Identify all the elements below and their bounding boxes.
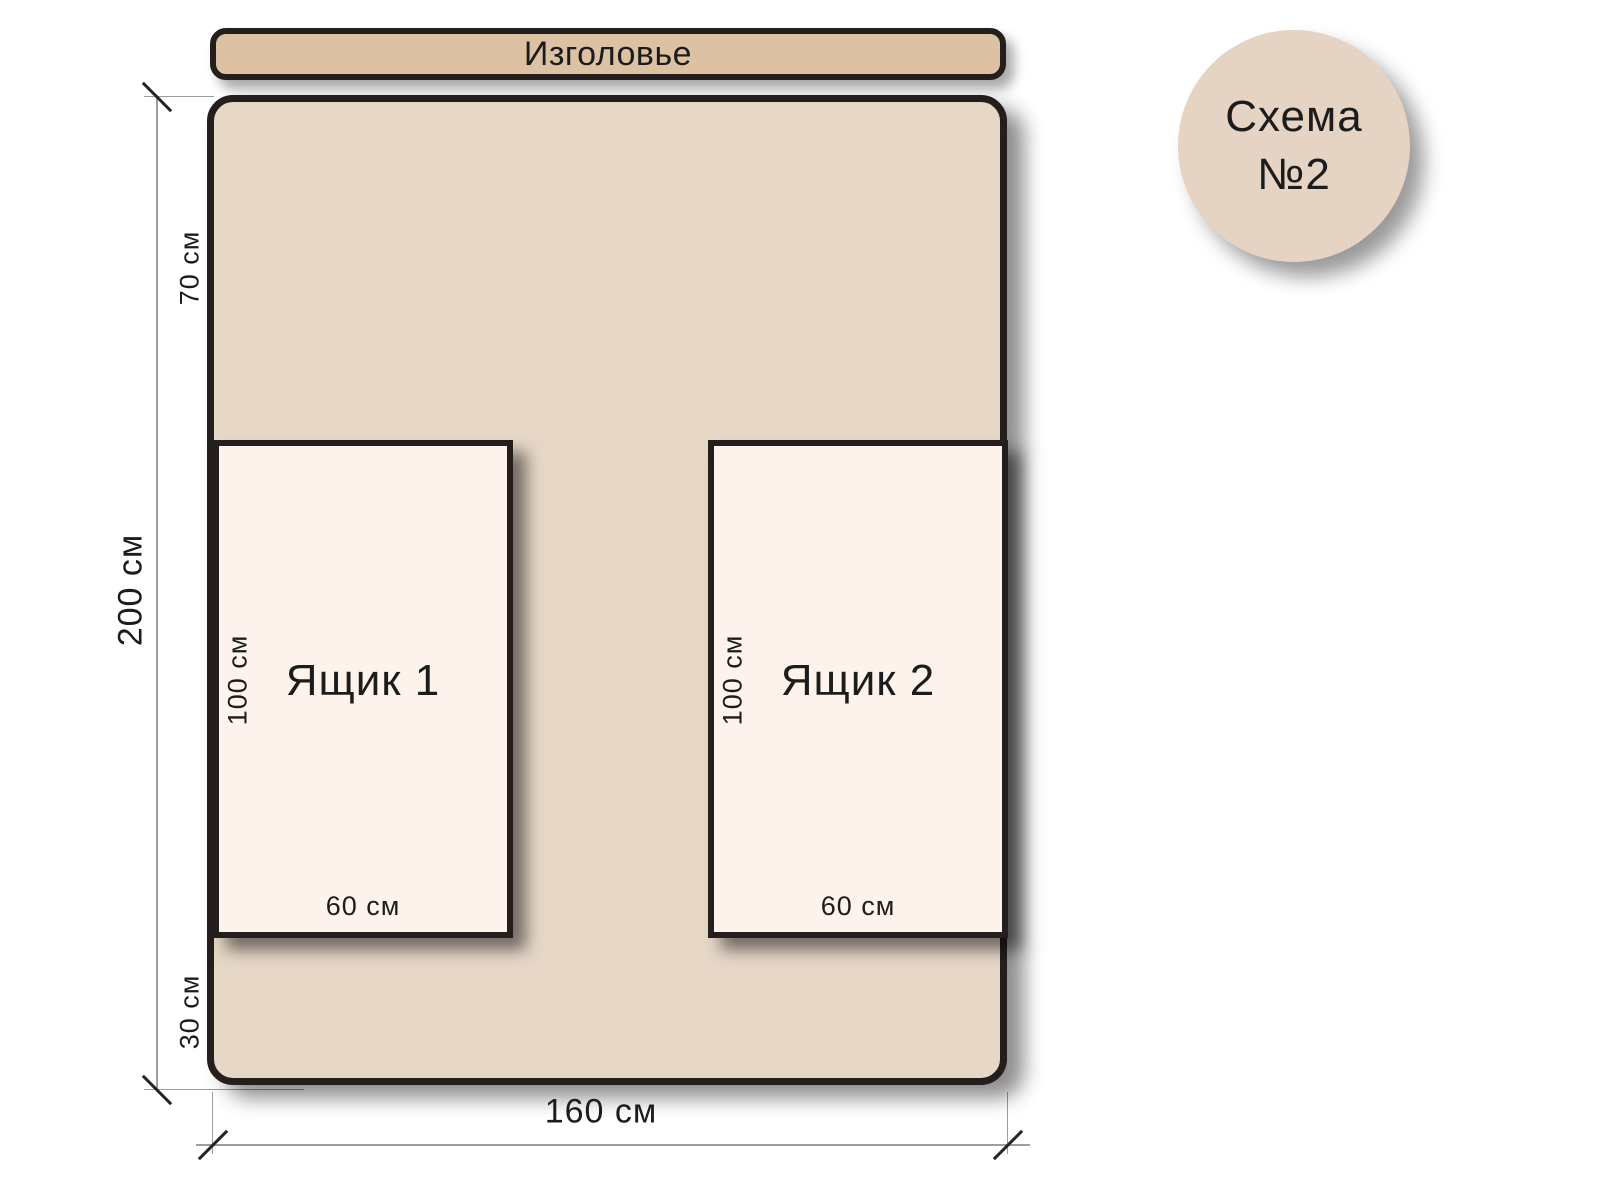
scheme-badge-line1: Схема bbox=[1225, 88, 1362, 146]
total-height-dimension-label: 200 см bbox=[112, 534, 151, 647]
drawer-2-height-label: 100 см bbox=[718, 635, 749, 726]
headboard: Изголовье bbox=[210, 28, 1006, 80]
drawer-2-label: Ящик 2 bbox=[714, 656, 1002, 706]
drawer-1-height-label: 100 см bbox=[223, 635, 254, 726]
vertical-dimension-line bbox=[156, 96, 158, 1091]
drawer-2-width-label: 60 см bbox=[714, 891, 1002, 922]
bed-scheme-diagram: Изголовье Ящик 1 60 см Ящик 2 60 см 70 с… bbox=[0, 0, 1600, 1200]
scheme-number-badge: Схема №2 bbox=[1178, 30, 1410, 262]
scheme-badge-line2: №2 bbox=[1257, 146, 1331, 204]
drawer-2: Ящик 2 60 см bbox=[708, 440, 1008, 938]
drawer-1: Ящик 1 60 см bbox=[213, 440, 513, 938]
head-offset-dimension-label: 70 см bbox=[175, 231, 206, 306]
extension-line-bottom-left bbox=[144, 1089, 304, 1090]
total-width-dimension-label: 160 см bbox=[545, 1093, 658, 1132]
headboard-label: Изголовье bbox=[524, 35, 692, 74]
horizontal-dimension-line bbox=[196, 1144, 1030, 1146]
drawer-1-width-label: 60 см bbox=[219, 891, 507, 922]
drawer-1-label: Ящик 1 bbox=[219, 656, 507, 706]
foot-offset-dimension-label: 30 см bbox=[175, 975, 206, 1050]
